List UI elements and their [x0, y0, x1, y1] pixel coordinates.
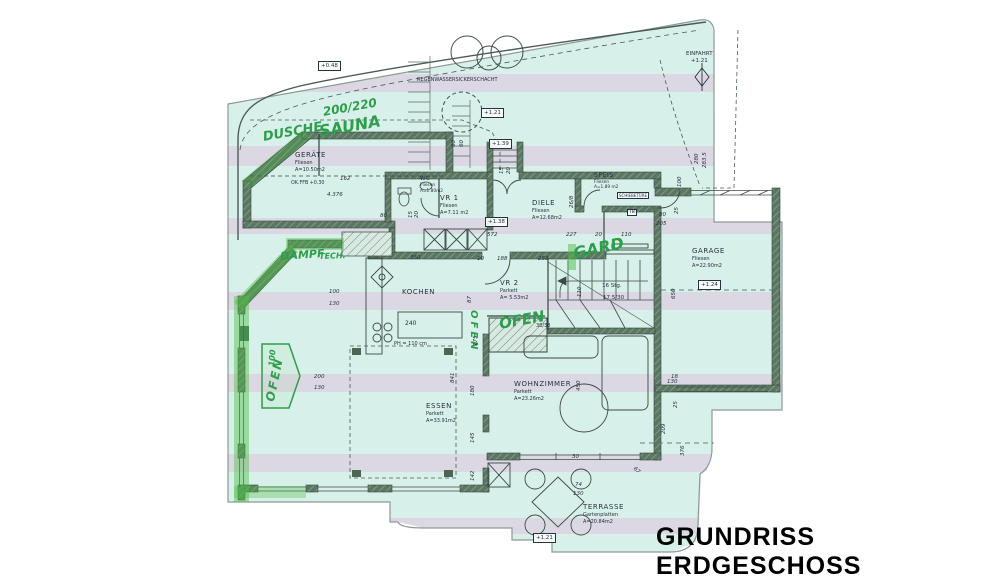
level-marker: +1.38 — [485, 217, 508, 227]
dim: 100 — [677, 177, 683, 188]
dim: 283.5 — [702, 152, 708, 168]
dim: 200 — [314, 374, 325, 380]
dim: 4.376 — [327, 192, 343, 198]
drawing-title: GRUNDRISS ERDGESCHOSS — [656, 523, 1000, 581]
dim: 80 — [659, 212, 666, 218]
room-label-kochen: KOCHEN — [402, 288, 435, 297]
scanned-floorplan-page: { "title": "GRUNDRISS ERDGESCHOSS", "col… — [0, 0, 1000, 570]
room-label-diele: DIELE Fliesen A=12.68m2 — [532, 199, 562, 221]
dim: 175 — [473, 336, 479, 347]
north-compass-icon — [695, 63, 709, 91]
dim: 350 — [410, 255, 421, 261]
room-label-vr1: VR 1 Fliesen A=7.11 m2 — [440, 194, 468, 216]
entry-step-lines — [493, 150, 517, 168]
terrace-furniture — [488, 463, 591, 535]
dim: 15 — [499, 167, 505, 174]
kitchen-height-note: PH = 110 cm — [394, 341, 427, 347]
dim: 253 — [538, 256, 549, 262]
dim: 110 — [621, 232, 632, 238]
dim: 60 — [459, 140, 465, 147]
level-marker: +0.48 — [318, 61, 341, 71]
level-marker: +1.21 — [533, 533, 556, 543]
dim: 74 — [575, 482, 582, 488]
dim: 130 — [573, 491, 584, 497]
level-marker: +1.24 — [698, 280, 721, 290]
note-tech: TECH. — [319, 252, 346, 261]
entry-steps-hatch — [342, 232, 392, 256]
note-ofen-wall: OFEN — [468, 310, 478, 353]
tuer-tag: TB — [627, 209, 637, 216]
dim: 20 — [414, 211, 420, 218]
level-marker: +1.21 — [481, 108, 504, 118]
dim: 25 — [674, 207, 680, 214]
dim: 650 — [671, 289, 677, 300]
dim: 100 — [329, 289, 340, 295]
room-label-wohnzimmer: WOHNZIMMER Parkett A=23.26m2 — [514, 380, 571, 402]
dim: 10 — [477, 256, 484, 262]
okffb-label: OK.FFB +0.30 — [291, 181, 324, 186]
note-ofen-bay-dim: 100 — [268, 349, 277, 366]
dim: 205 — [656, 221, 667, 227]
regenwasser-label: REGENWASSERSICKERSCHACHT — [417, 77, 498, 83]
stair-count-label: 16 Stg. — [602, 283, 622, 289]
dim: 227 — [566, 232, 577, 238]
dim: 572 — [487, 232, 498, 238]
dim: 30 — [572, 454, 579, 460]
dim: 145 — [470, 433, 476, 444]
dim: 450 — [576, 381, 582, 392]
dim: 110 — [577, 287, 583, 298]
stair-step-label: 17.5/30 — [603, 295, 624, 301]
dim: 280 — [694, 154, 700, 165]
dim: 18 — [671, 374, 678, 380]
dim: 188 — [497, 256, 508, 262]
dim: 209 — [661, 424, 667, 435]
room-label-vr2: VR 2 Parkett A= 5.53m2 — [500, 279, 528, 301]
room-label-geraete: GERÄTE Fliesen A=10.50m2 — [295, 151, 326, 173]
einfahrt-label: EINFAHRT +1.21 — [686, 51, 713, 64]
dim: 142 — [470, 471, 476, 482]
room-label-garage: GARAGE Fliesen A=22.90m2 — [692, 247, 725, 269]
dim: 162 — [340, 176, 351, 182]
dim: 20 — [506, 167, 512, 174]
dim: 25 — [673, 401, 679, 408]
dim: 87 — [467, 296, 473, 303]
staircase — [548, 260, 654, 328]
room-label-speis: SPEIS Fliesen A=1.89 m2 — [594, 172, 618, 191]
room-label-terrasse: TERRASSE Gartenplatten A=20.84m2 — [583, 503, 624, 525]
kitchen-island-dim: 240 — [405, 320, 416, 327]
dim: 376 — [680, 446, 686, 457]
level-marker: +1.39 — [489, 139, 512, 149]
dim: 60 — [451, 140, 457, 147]
room-label-wc: WC Fliesen A=1.80m2 — [420, 176, 443, 194]
dim: 80 — [380, 213, 387, 219]
dim: 841 — [450, 373, 456, 384]
survey-ticks — [408, 56, 470, 170]
dim: 20 — [595, 232, 602, 238]
dim: 130 — [314, 385, 325, 391]
dim: 130 — [329, 301, 340, 307]
schiebetuere-label: SCHIEBETÜRE — [617, 192, 649, 199]
dim: 180 — [470, 386, 476, 397]
dim: 26/8 — [569, 196, 575, 208]
room-label-essen: ESSEN Parkett A=33.91m2 — [426, 402, 456, 424]
